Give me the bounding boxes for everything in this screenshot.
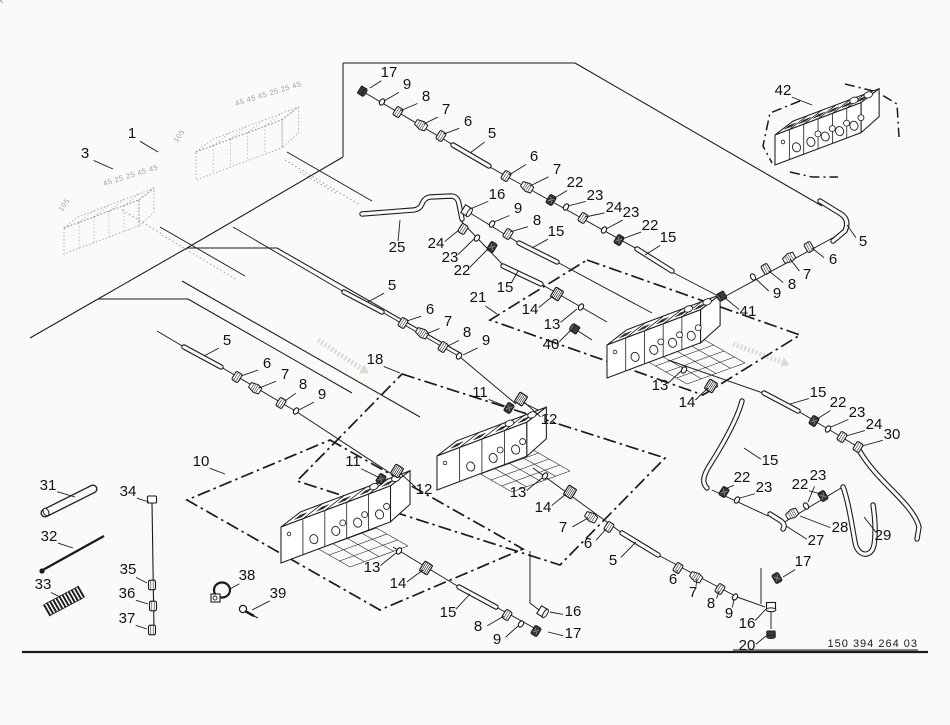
callout-label: 22 <box>642 217 659 234</box>
block-port <box>384 503 390 509</box>
callout-label: 9 <box>403 76 411 93</box>
callout-label: 8 <box>299 376 307 393</box>
callout-label: 5 <box>859 233 867 250</box>
rod-end-ball <box>39 568 44 573</box>
clamp-foot <box>211 594 220 602</box>
callout-label: 22 <box>454 262 471 279</box>
callout-label: 13 <box>510 484 527 501</box>
callout-label: 13 <box>652 377 669 394</box>
callout-label: 17 <box>381 64 398 81</box>
callout-label: 24 <box>866 416 883 433</box>
block-port <box>815 131 821 137</box>
callout-label: 7 <box>553 161 561 178</box>
callout-label: 25 <box>389 239 406 256</box>
callout-label: 8 <box>788 276 796 293</box>
callout-label: 27 <box>808 532 825 549</box>
callout-label: 14 <box>535 499 552 516</box>
callout-label: 23 <box>587 187 604 204</box>
callout-label: 23 <box>756 479 773 496</box>
nut-fitting <box>149 625 156 635</box>
callout-label: 29 <box>875 527 892 544</box>
callout-label: 5 <box>488 125 496 142</box>
callout-label: 42 <box>775 82 792 99</box>
callout-label: 8 <box>533 212 541 229</box>
block-port <box>844 120 850 126</box>
callout-label: 38 <box>239 567 256 584</box>
callout-label: 23 <box>849 404 866 421</box>
nut-body <box>150 601 157 611</box>
callout-label: 8 <box>707 595 715 612</box>
callout-label: 31 <box>40 477 57 494</box>
callout-label: 7 <box>803 266 811 283</box>
callout-label: 21 <box>470 289 487 306</box>
callout-label: 13 <box>544 316 561 333</box>
callout-label: 22 <box>792 476 809 493</box>
callout-label: 14 <box>679 394 696 411</box>
callout-label: 15 <box>497 279 514 296</box>
callout-label: 22 <box>567 174 584 191</box>
callout-label: 41 <box>740 303 757 320</box>
page-background <box>0 0 950 725</box>
callout-label: 28 <box>832 519 849 536</box>
callout-label: 37 <box>119 610 136 627</box>
block-port <box>362 512 368 518</box>
callout-label: 15 <box>548 223 565 240</box>
cap-fitting <box>767 631 776 639</box>
callout-label: 1 <box>128 125 136 142</box>
callout-label: 7 <box>559 519 567 536</box>
callout-label: 9 <box>318 386 326 403</box>
callout-label: 9 <box>514 200 522 217</box>
callout-label: 16 <box>565 603 582 620</box>
callout-label: 5 <box>388 277 396 294</box>
cap-face <box>767 635 776 639</box>
block-port <box>695 325 701 331</box>
callout-label: 9 <box>725 605 733 622</box>
callout-label: 15 <box>810 384 827 401</box>
callout-label: 22 <box>734 469 751 486</box>
flange-nut-fitting <box>766 603 776 612</box>
exploded-parts-diagram: 45 45 45 25 25 4510545 25 25 45 45105131… <box>0 0 950 725</box>
block-port <box>658 339 664 345</box>
callout-label: 40 <box>543 336 560 353</box>
callout-label: 8 <box>463 324 471 341</box>
callout-label: 30 <box>884 426 901 443</box>
callout-label: 12 <box>541 411 558 428</box>
block-port <box>520 439 526 445</box>
callout-label: 18 <box>367 351 384 368</box>
callout-label: 6 <box>263 355 271 372</box>
callout-label: 15 <box>440 604 457 621</box>
callout-label: 23 <box>810 467 827 484</box>
callout-label: 9 <box>482 332 490 349</box>
nut-fitting <box>149 580 156 590</box>
callout-label: 7 <box>689 584 697 601</box>
block-port <box>340 520 346 526</box>
callout-label: 6 <box>530 148 538 165</box>
callout-label: 6 <box>426 301 434 318</box>
callout-label: 35 <box>120 561 137 578</box>
block-port <box>829 126 835 132</box>
block-port <box>497 447 503 453</box>
callout-label: 17 <box>795 553 812 570</box>
callout-label: 6 <box>584 535 592 552</box>
block-port <box>858 115 864 121</box>
drawing-part-number: 150 394 264 03 <box>828 638 918 650</box>
callout-label: 6 <box>464 113 472 130</box>
callout-label: 24 <box>606 199 623 216</box>
callout-label: 33 <box>35 576 52 593</box>
callout-label: 15 <box>762 452 779 469</box>
callout-label: 13 <box>364 559 381 576</box>
callout-label: 34 <box>120 483 137 500</box>
callout-label: 32 <box>41 528 58 545</box>
callout-label: 11 <box>345 453 361 470</box>
callout-label: 5 <box>223 332 231 349</box>
callout-label: 8 <box>422 88 430 105</box>
callout-label: 7 <box>444 313 452 330</box>
callout-label: 11 <box>472 384 488 401</box>
callout-label: 17 <box>565 625 582 642</box>
callout-label: 22 <box>830 394 847 411</box>
callout-label: 7 <box>442 101 450 118</box>
callout-label: 5 <box>609 552 617 569</box>
block-port <box>677 332 683 338</box>
callout-label: 14 <box>522 301 539 318</box>
callout-label: 9 <box>493 631 501 648</box>
flange-disc <box>766 608 776 612</box>
parts-diagram-page: 45 45 45 25 25 4510545 25 25 45 45105131… <box>0 0 950 725</box>
callout-label: 36 <box>119 585 136 602</box>
callout-label: 9 <box>773 285 781 302</box>
nut-body <box>149 625 156 635</box>
callout-label: 6 <box>829 251 837 268</box>
callout-label: 39 <box>270 585 287 602</box>
callout-label: 15 <box>660 229 677 246</box>
nut-body <box>149 580 156 590</box>
callout-label: 8 <box>474 618 482 635</box>
callout-label: 16 <box>489 186 506 203</box>
callout-label: 7 <box>281 366 289 383</box>
callout-label: 6 <box>669 571 677 588</box>
callout-label: 12 <box>416 481 433 498</box>
callout-label: 10 <box>193 453 210 470</box>
callout-label: 23 <box>623 204 640 221</box>
nut-fitting <box>150 601 157 611</box>
callout-label: 14 <box>390 575 407 592</box>
callout-label: 16 <box>739 615 756 632</box>
diagram-generated-layer: 45 45 45 25 25 4510545 25 25 45 45105131… <box>0 0 950 725</box>
callout-label: 3 <box>81 145 89 162</box>
